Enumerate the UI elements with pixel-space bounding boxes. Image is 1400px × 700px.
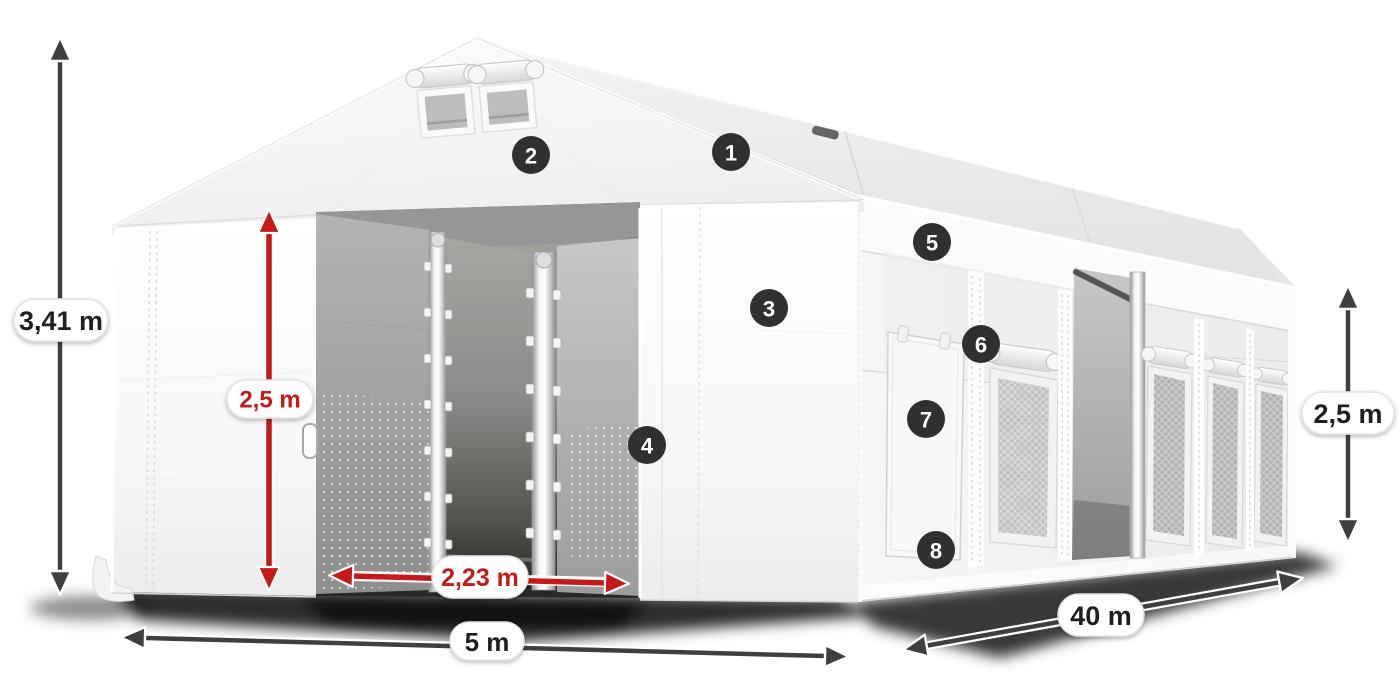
side-opening xyxy=(1072,268,1145,560)
svg-text:3: 3 xyxy=(763,297,775,322)
svg-text:6: 6 xyxy=(975,333,987,358)
side-height-dimension: 2,5 m xyxy=(1302,290,1394,538)
total-height-dimension: 3,41 m xyxy=(14,42,108,590)
dimension-label-entrance-width: 2,23 m xyxy=(441,564,519,592)
door-hanger-tab xyxy=(897,325,909,342)
svg-text:2: 2 xyxy=(525,144,537,169)
callout-badge-5[interactable]: 5 xyxy=(913,223,951,261)
callout-badge-4[interactable]: 4 xyxy=(628,426,666,464)
callout-badge-3[interactable]: 3 xyxy=(750,289,788,327)
callout-badge-1[interactable]: 1 xyxy=(712,133,750,171)
callout-badge-7[interactable]: 7 xyxy=(907,400,945,438)
callout-badge-6[interactable]: 6 xyxy=(962,325,1000,363)
dimension-label-side-height: 2,5 m xyxy=(1313,399,1382,429)
door-hanger-tab xyxy=(939,332,951,349)
svg-text:7: 7 xyxy=(920,408,932,433)
dimension-label-length: 40 m xyxy=(1070,601,1132,631)
front-right-wall xyxy=(640,202,858,602)
dimension-label-entrance-height: 2,5 m xyxy=(239,387,300,414)
front-width-dimension: 5 m xyxy=(126,622,844,660)
opening-pole xyxy=(1130,272,1145,558)
dimension-label-front-width: 5 m xyxy=(465,627,510,657)
pass-through xyxy=(446,238,533,590)
callout-badge-8[interactable]: 8 xyxy=(917,531,955,569)
callout-badge-2[interactable]: 2 xyxy=(512,136,550,174)
product-dimension-diagram: 3,41 m 2,5 m 2,23 m 5 m 40 m 2,5 m xyxy=(0,0,1400,700)
door-handle xyxy=(303,424,317,458)
svg-text:8: 8 xyxy=(930,539,942,564)
side-door xyxy=(886,325,964,560)
entrance-opening xyxy=(316,202,640,598)
dimension-label-total-height: 3,41 m xyxy=(19,306,103,336)
svg-text:1: 1 xyxy=(725,141,737,166)
svg-text:4: 4 xyxy=(641,434,654,459)
svg-text:5: 5 xyxy=(926,231,938,256)
